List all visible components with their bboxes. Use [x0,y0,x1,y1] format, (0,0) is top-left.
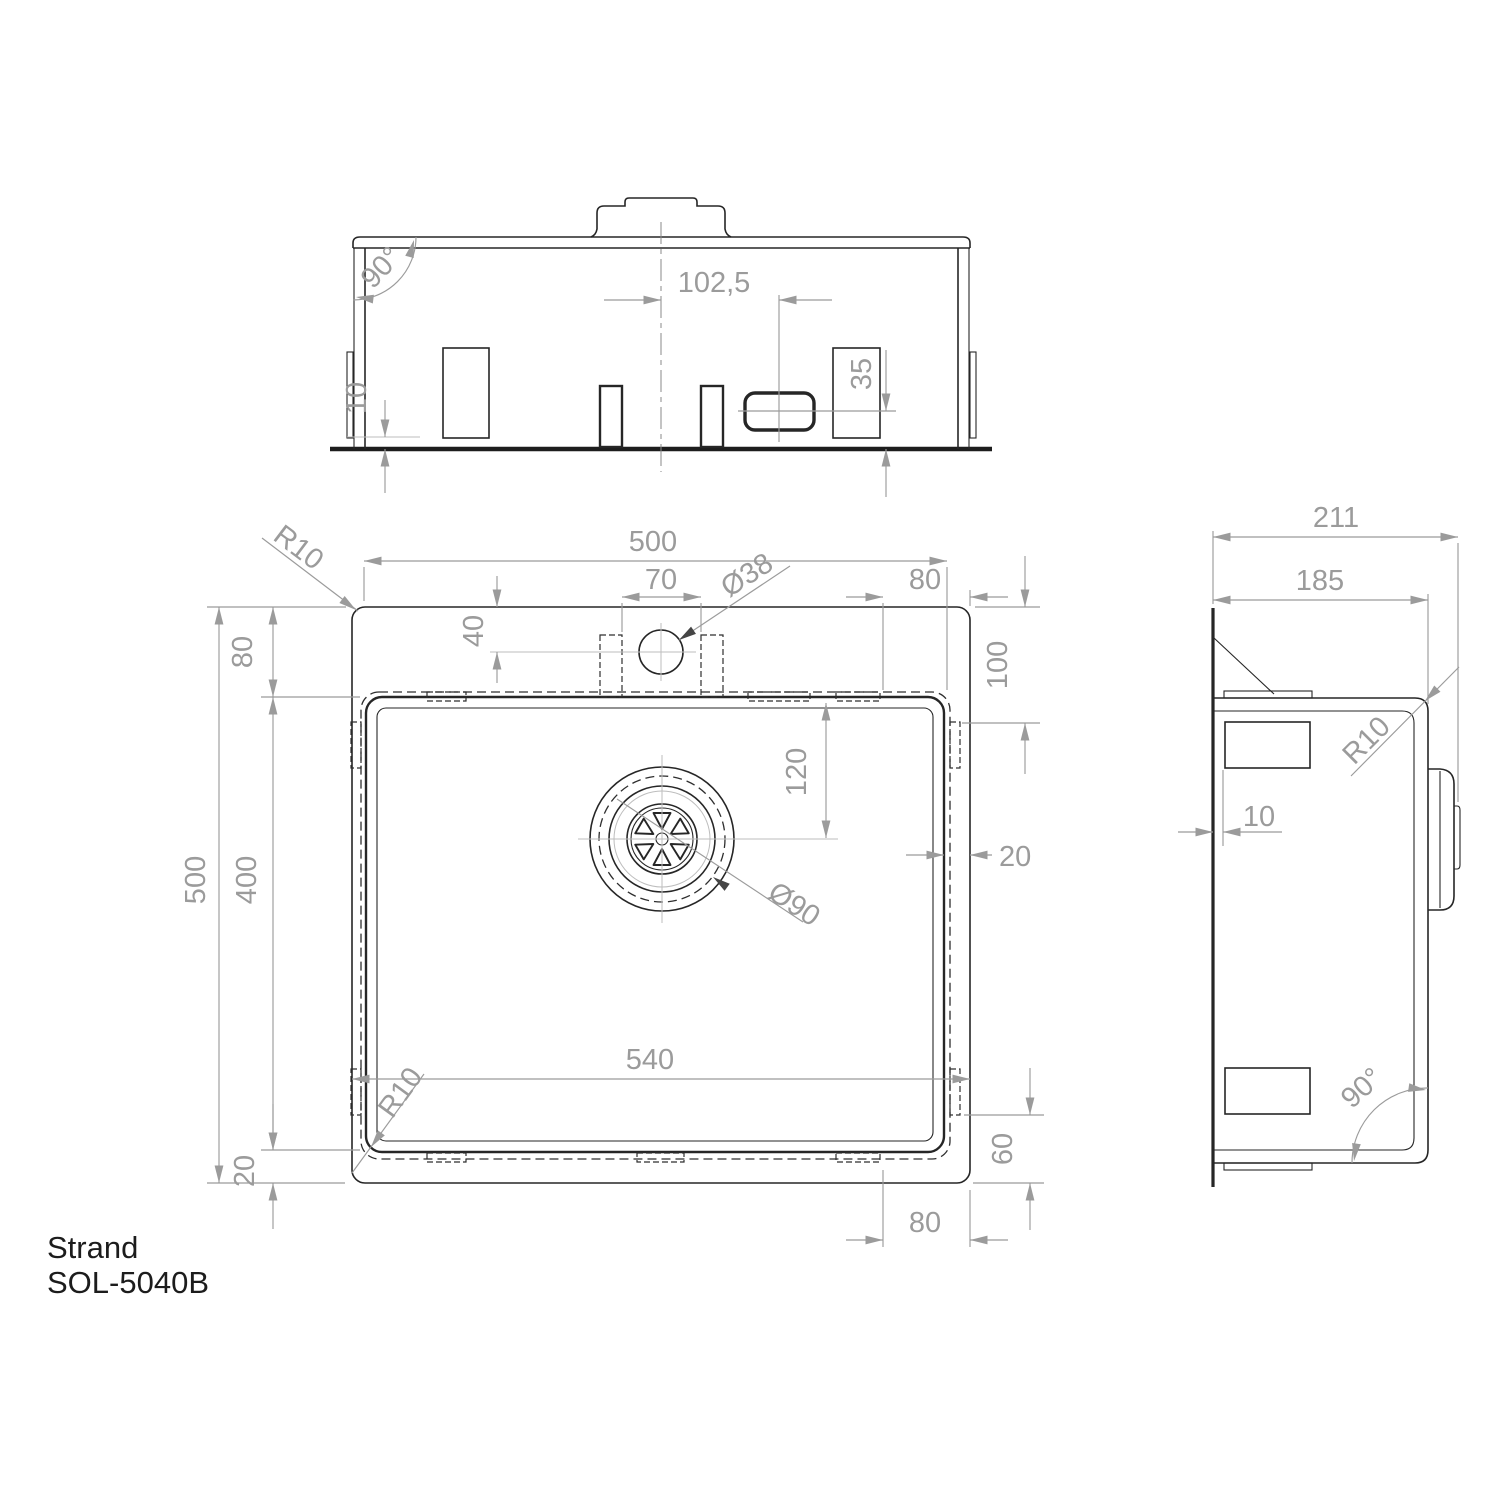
sink-technical-drawing: 90° 102,5 35 10 [0,0,1500,1500]
dim-plan-tap-hole-dia: Ø38 [715,547,778,604]
front-bracket-left [600,386,622,447]
dim-plan-front-clip-offset: 60 [987,1133,1019,1165]
dim-plan-back-clip-edge: 80 [909,564,941,596]
dim-plan-bowl-depth: 400 [231,856,263,904]
dim-side-body-height: 185 [1296,565,1344,597]
dim-plan-flange-corner-radius: R10 [268,519,330,577]
side-clip-bottom [1225,1068,1310,1114]
dim-plan-drain-offset: 120 [781,748,813,796]
dim-side-angle: 90° [1335,1062,1389,1115]
dim-front-angle: 90° [355,241,408,295]
overflow-side [1428,769,1454,910]
flange-outline [352,607,970,1183]
side-clip-top [1225,722,1310,768]
tap-bracket-right [701,635,723,697]
model-number: SOL-5040B [47,1265,209,1300]
front-clip-left [443,348,489,438]
dim-plan-back-clip-offset: 100 [982,641,1014,689]
dim-plan-rim-back: 80 [227,636,259,668]
bowl-outline [366,697,944,1152]
front-view: 90° 102,5 35 10 [330,198,992,497]
front-bracket-right [701,386,723,447]
dim-front-clip-gap: 10 [341,382,373,414]
plan-view: 500 70 Ø38 80 40 80 [180,519,1044,1247]
dim-plan-bowl-width: 500 [629,526,677,558]
dim-side-total-height: 211 [1313,502,1359,534]
side-view: 211 185 R10 10 90° [1178,502,1460,1187]
dim-side-clip-inset: 10 [1243,801,1275,833]
dim-plan-tap-hole-depth: 40 [458,615,490,647]
dim-plan-rim-front: 20 [229,1155,261,1187]
dim-front-center-offset: 102,5 [678,267,751,299]
product-name: Strand [47,1230,138,1265]
dim-plan-bowl-corner-radius: R10 [372,1062,429,1124]
dim-side-corner-radius: R10 [1337,711,1397,771]
hidden-body-outline [361,692,950,1159]
dim-plan-overall-width: 540 [626,1044,674,1076]
technical-drawing-page: 90° 102,5 35 10 [0,0,1500,1500]
front-right-tab [970,352,976,438]
dim-plan-tap-gap: 70 [645,564,677,596]
tap-bracket-left [600,635,622,697]
title-block: Strand SOL-5040B [47,1230,209,1300]
dim-plan-overall-depth: 500 [180,856,212,904]
dim-front-overflow-height: 35 [846,358,878,390]
dim-plan-rim-right: 20 [999,841,1031,873]
dim-plan-drain-dia: Ø90 [762,876,825,933]
dim-plan-front-clip-edge: 80 [909,1207,941,1239]
